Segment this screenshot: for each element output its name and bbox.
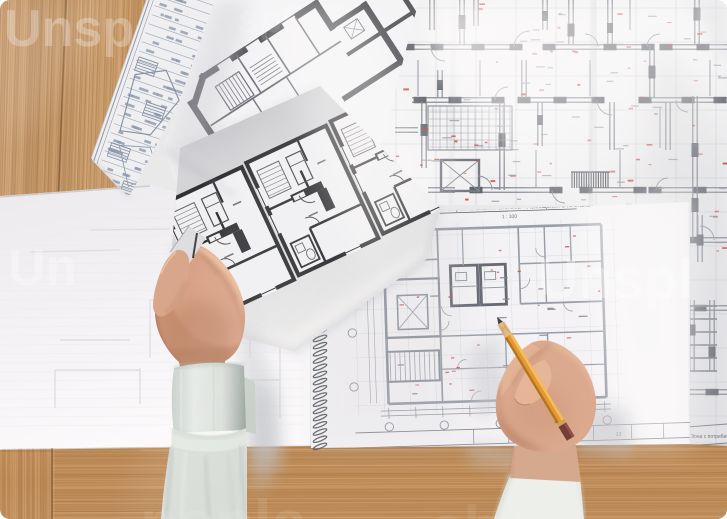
svg-text:Unspl: Unspl	[538, 247, 694, 310]
svg-text:nspla: nspla	[140, 487, 308, 519]
svg-text:Un: Un	[8, 239, 77, 297]
svg-text:sh+: sh+	[430, 494, 535, 519]
svg-text:spl: spl	[238, 0, 293, 41]
svg-text:Unsp: Unsp	[4, 0, 134, 58]
